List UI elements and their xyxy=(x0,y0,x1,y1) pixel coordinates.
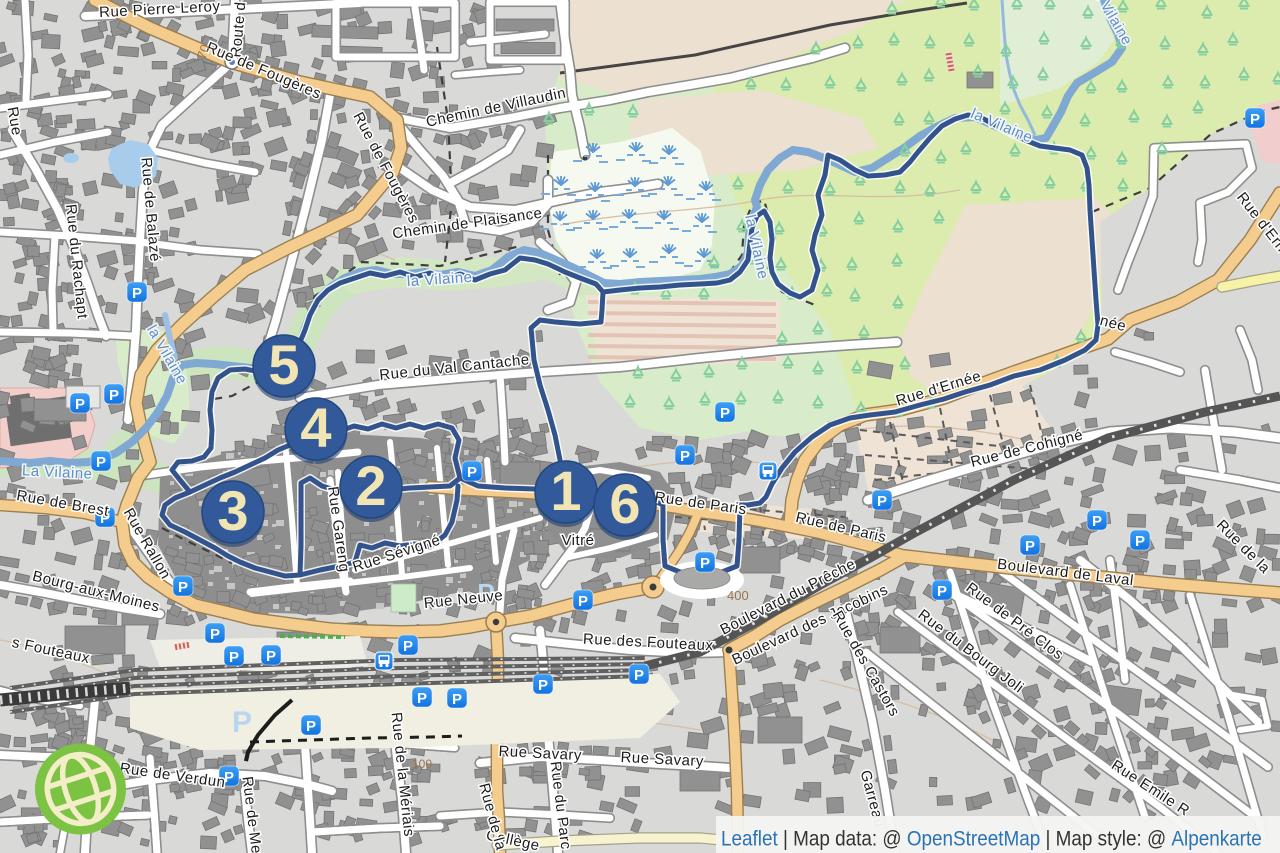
svg-text:2: 2 xyxy=(355,454,386,517)
svg-text:1: 1 xyxy=(550,459,581,522)
svg-text:4: 4 xyxy=(300,396,331,459)
svg-text:400: 400 xyxy=(727,588,749,603)
svg-text:Vitré: Vitré xyxy=(561,532,594,549)
svg-text:100: 100 xyxy=(412,757,432,771)
svg-text:6: 6 xyxy=(609,472,640,535)
svg-text:P: P xyxy=(232,706,252,739)
svg-text:5: 5 xyxy=(268,333,299,396)
svg-text:3: 3 xyxy=(217,479,248,542)
svg-text:Leaflet | Map data: @ OpenStre: Leaflet | Map data: @ OpenStreetMap | Ma… xyxy=(721,828,1262,851)
